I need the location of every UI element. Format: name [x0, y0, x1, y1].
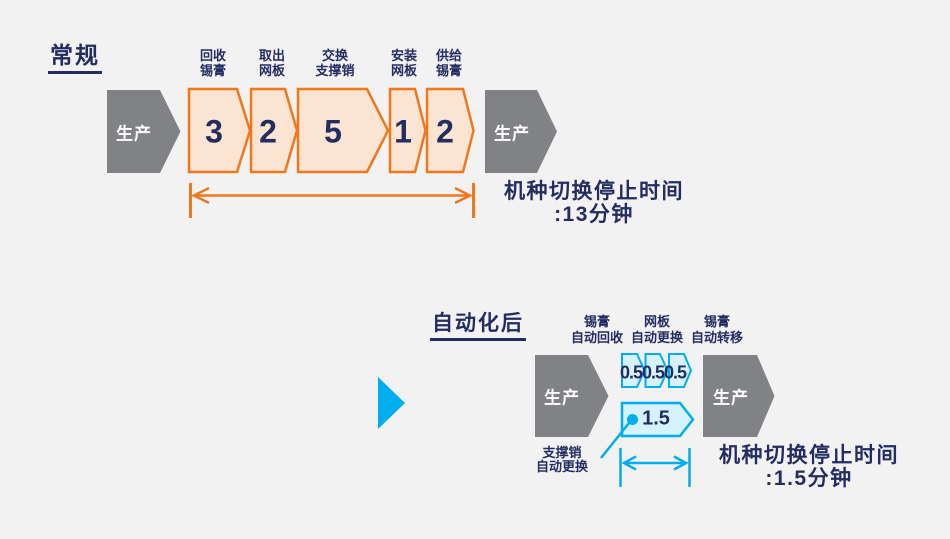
support-pin-duration: 1.5: [642, 408, 670, 431]
transition-arrow-icon: [378, 377, 405, 429]
conventional-duration-span-arrow: [191, 183, 474, 218]
production-label-top-right: 生产: [494, 120, 530, 145]
step-label-supply-paste: 供给 锡膏: [436, 48, 462, 78]
conventional-result-line2: :13分钟: [489, 204, 699, 227]
step-label-install-stencil: 安装 网板: [391, 48, 417, 78]
automated-result-line2: :1.5分钟: [704, 468, 914, 491]
conventional-result: 机种切换停止时间 :13分钟: [489, 181, 699, 226]
step-duration-1: 3: [205, 114, 223, 151]
step-duration-5: 2: [436, 114, 454, 151]
step-duration-4: 1: [394, 114, 412, 151]
step-chevron-exchange-pins: [298, 89, 388, 172]
auto-step-duration-1: 0.5: [620, 363, 642, 384]
step-duration-3: 5: [324, 114, 342, 151]
step-label-exchange-pins: 交换 支撑销: [315, 48, 354, 78]
support-pin-label: 支撑销 自动更换: [536, 446, 588, 474]
production-label-bottom-left: 生产: [544, 384, 580, 409]
step-duration-2: 2: [259, 114, 277, 151]
auto-step-duration-2: 0.5: [642, 363, 664, 384]
auto-label-stencil-change: 网板 自动更换: [631, 314, 683, 345]
changeover-comparison-diagram: 常规 回收 锡膏 取出 网板 交换 支撑销 安装 网板 供给 锡膏 生产 生产 …: [0, 0, 950, 539]
automated-duration-span-arrow: [621, 448, 690, 487]
automated-result: 机种切换停止时间 :1.5分钟: [704, 445, 914, 490]
auto-label-paste-transfer: 锡膏 自动转移: [691, 314, 743, 345]
auto-step-durations: 0.5 0.5 0.5: [620, 363, 686, 384]
auto-label-paste-recover: 锡膏 自动回收: [571, 314, 623, 345]
step-label-recover-paste: 回收 锡膏: [200, 48, 226, 78]
automated-title: 自动化后: [430, 307, 526, 341]
conventional-title: 常规: [48, 36, 102, 74]
step-label-remove-stencil: 取出 网板: [259, 48, 285, 78]
production-label-top-left: 生产: [116, 120, 152, 145]
auto-step-duration-3: 0.5: [664, 363, 686, 384]
production-label-bottom-right: 生产: [713, 384, 749, 409]
support-pin-pointer-line: [601, 423, 629, 458]
conventional-result-line1: 机种切换停止时间: [489, 181, 699, 204]
automated-result-line1: 机种切换停止时间: [704, 445, 914, 468]
